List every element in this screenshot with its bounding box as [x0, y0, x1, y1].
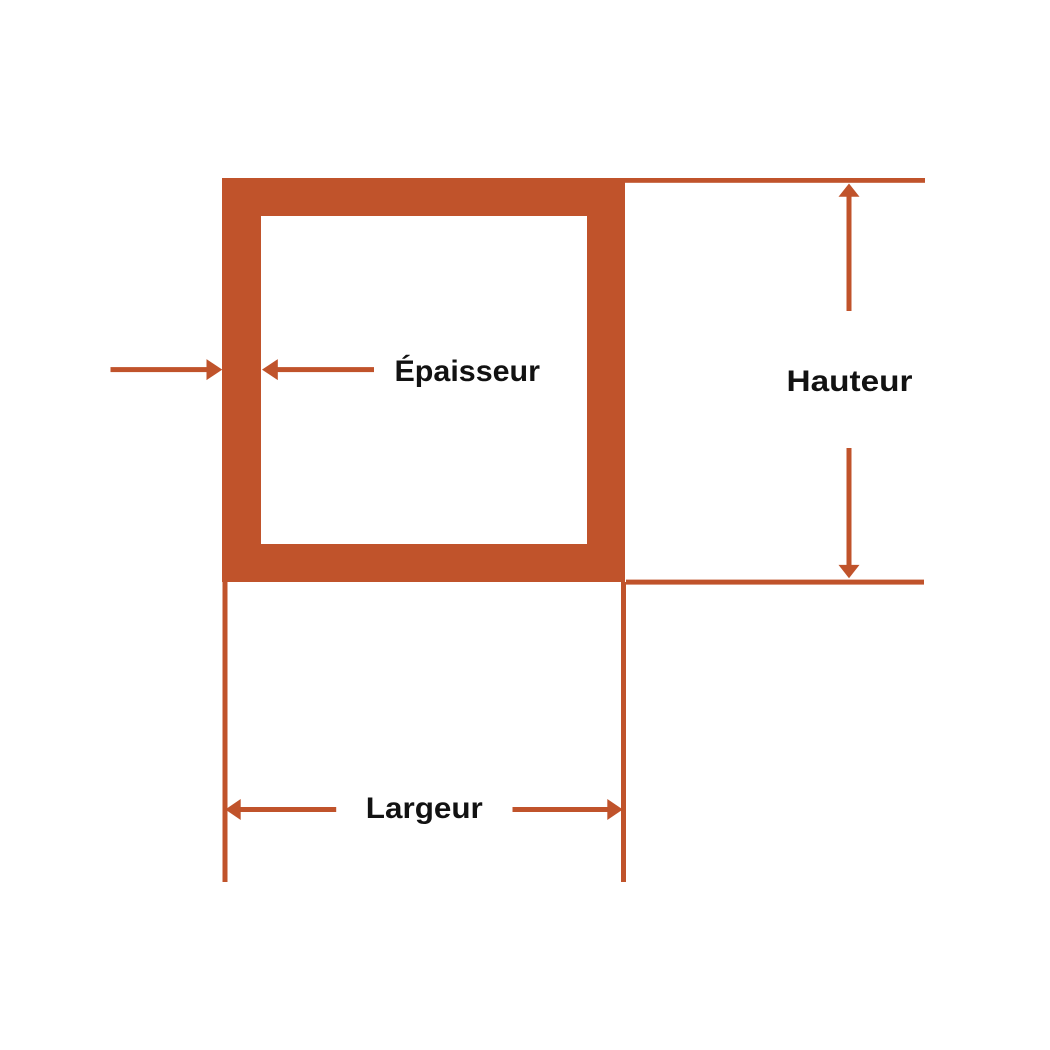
svg-text:Hauteur: Hauteur — [787, 365, 913, 398]
svg-text:Épaisseur: Épaisseur — [395, 354, 541, 388]
svg-text:Largeur: Largeur — [366, 792, 483, 825]
